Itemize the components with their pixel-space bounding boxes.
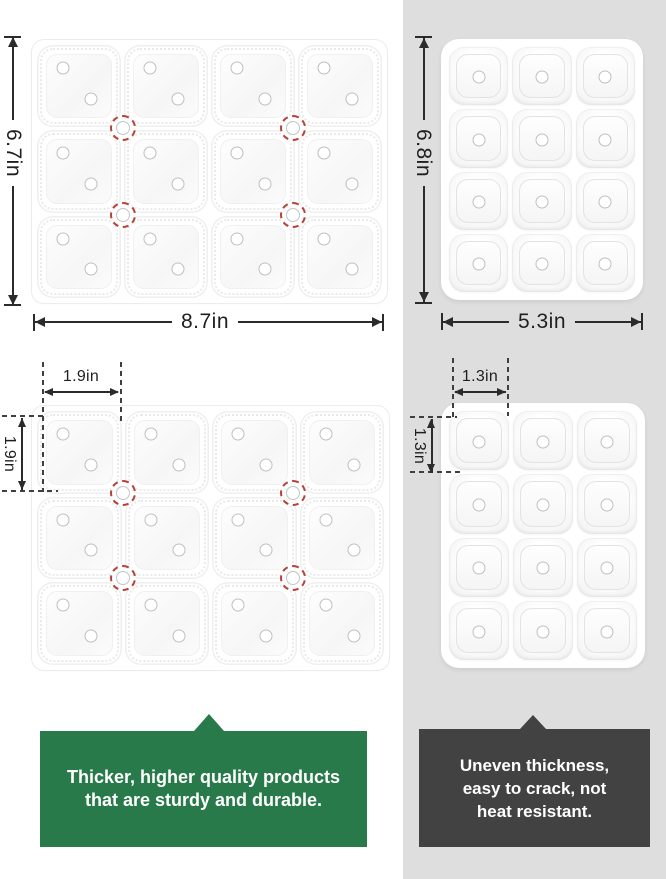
dimension-line [21, 418, 23, 490]
callout-good-line: Thicker, higher quality products [67, 766, 340, 789]
tray-compartment [125, 497, 210, 580]
tray-compartment [512, 234, 571, 292]
vent-hole [472, 258, 485, 271]
tray-compartment [512, 172, 571, 230]
callout-bad-line: Uneven thickness, [460, 754, 609, 777]
tray-compartment [577, 474, 637, 533]
dimension-cap [641, 313, 643, 330]
junction-hole-marker [280, 202, 306, 228]
tray-compartment [211, 130, 295, 212]
junction-hole-marker [280, 565, 306, 591]
tray-compartment [37, 130, 121, 212]
callout-bad: Uneven thickness, easy to crack, not hea… [419, 729, 650, 847]
arrowhead-down-icon [18, 481, 26, 490]
tray-compartment [449, 474, 509, 533]
arrowhead-right-icon [110, 388, 119, 396]
vent-hole [171, 177, 184, 190]
arrowhead-up-icon [8, 37, 18, 47]
vent-hole [260, 630, 273, 643]
vent-hole [85, 544, 98, 557]
vent-hole [57, 599, 70, 612]
height-label-large: 6.7in [1, 120, 25, 186]
vent-hole [258, 92, 271, 105]
dashed-guide [410, 471, 460, 473]
vent-hole [231, 147, 244, 160]
cell-height-label-large: 1.9in [0, 429, 19, 479]
tray-small-cell-detail [441, 403, 645, 668]
vent-hole [347, 544, 360, 557]
vent-hole [84, 92, 97, 105]
vent-hole [599, 71, 612, 84]
tray-compartment [37, 497, 122, 580]
vent-hole [535, 133, 548, 146]
junction-hole-marker [110, 480, 136, 506]
vent-hole [473, 625, 486, 638]
vent-hole [537, 435, 550, 448]
vent-hole [319, 513, 332, 526]
tray-small-overview [441, 39, 643, 300]
vent-hole [144, 428, 157, 441]
pointer-triangle-bad [520, 715, 546, 729]
width-label-small: 5.3in [509, 310, 575, 334]
vent-hole [318, 147, 331, 160]
vent-hole [347, 458, 360, 471]
dimension-cap [415, 302, 432, 304]
vent-hole [473, 562, 486, 575]
vent-hole [84, 177, 97, 190]
tray-compartment [300, 497, 385, 580]
arrowhead-down-icon [419, 292, 429, 302]
vent-hole [144, 599, 157, 612]
junction-hole-marker [280, 115, 306, 141]
junction-hole-marker [110, 565, 136, 591]
tray-compartment [513, 601, 573, 660]
vent-hole [472, 195, 485, 208]
vent-hole [57, 428, 70, 441]
tray-compartment [37, 582, 122, 665]
arrowhead-left-icon [443, 317, 453, 327]
pointer-triangle-good [194, 714, 224, 731]
dashed-guide [2, 415, 44, 417]
tray-compartment [212, 582, 297, 665]
tray-compartment [125, 411, 210, 494]
vent-hole [144, 513, 157, 526]
vent-hole [144, 62, 157, 75]
tray-compartment [298, 216, 382, 298]
tray-compartment [513, 474, 573, 533]
tray-compartment [124, 45, 208, 127]
vent-hole [599, 133, 612, 146]
tray-compartment [125, 582, 210, 665]
vent-hole [345, 177, 358, 190]
tray-compartment [513, 411, 573, 470]
arrowhead-left-icon [44, 388, 53, 396]
tray-grid-large [37, 45, 382, 298]
tray-compartment [449, 172, 508, 230]
vent-hole [84, 263, 97, 276]
vent-hole [473, 435, 486, 448]
vent-hole [319, 599, 332, 612]
arrowhead-left-icon [454, 388, 463, 396]
tray-compartment [298, 130, 382, 212]
vent-hole [345, 92, 358, 105]
tray-compartment [576, 47, 635, 105]
tray-compartment [298, 45, 382, 127]
vent-hole [318, 232, 331, 245]
tray-grid-small-detail [449, 411, 637, 660]
cell-width-label-small: 1.3in [453, 368, 507, 386]
arrowhead-right-icon [497, 388, 506, 396]
vent-hole [318, 62, 331, 75]
tray-compartment [449, 411, 509, 470]
vent-hole [57, 232, 70, 245]
tray-compartment [576, 172, 635, 230]
tray-compartment [449, 234, 508, 292]
junction-hole-marker [110, 202, 136, 228]
vent-hole [319, 428, 332, 441]
tray-large-cell-detail [32, 406, 389, 670]
vent-hole [535, 258, 548, 271]
vent-hole [231, 232, 244, 245]
tray-compartment [577, 601, 637, 660]
tray-compartment [300, 411, 385, 494]
height-label-small: 6.8in [411, 120, 435, 186]
callout-bad-line: heat resistant. [477, 800, 592, 823]
tray-compartment [124, 216, 208, 298]
tray-compartment [576, 234, 635, 292]
dashed-guide [507, 358, 509, 416]
arrowhead-up-icon [18, 418, 26, 427]
arrowhead-up-icon [419, 38, 429, 48]
dashed-guide [410, 416, 457, 418]
vent-hole [172, 458, 185, 471]
vent-hole [85, 630, 98, 643]
vent-hole [345, 263, 358, 276]
dashed-guide [120, 362, 122, 422]
dimension-line [45, 391, 118, 393]
junction-hole-marker [110, 115, 136, 141]
callout-good: Thicker, higher quality products that ar… [40, 731, 367, 847]
vent-hole [172, 544, 185, 557]
dimension-cap [382, 314, 384, 331]
vent-hole [473, 499, 486, 512]
vent-hole [535, 71, 548, 84]
tray-compartment [37, 411, 122, 494]
vent-hole [171, 92, 184, 105]
tray-grid-small [449, 47, 635, 292]
vent-hole [535, 195, 548, 208]
tray-compartment [512, 109, 571, 167]
tray-compartment [449, 601, 509, 660]
dashed-guide [42, 362, 44, 492]
vent-hole [258, 263, 271, 276]
arrowhead-left-icon [35, 317, 45, 327]
vent-hole [537, 625, 550, 638]
tray-compartment [449, 109, 508, 167]
vent-hole [232, 513, 245, 526]
vent-hole [232, 428, 245, 441]
arrowhead-down-icon [8, 295, 18, 305]
callout-bad-line: easy to crack, not [463, 777, 607, 800]
cell-width-label-large: 1.9in [54, 368, 108, 386]
vent-hole [57, 147, 70, 160]
vent-hole [144, 147, 157, 160]
arrowhead-right-icon [372, 317, 382, 327]
tray-large-overview [32, 40, 387, 303]
vent-hole [601, 435, 614, 448]
vent-hole [599, 195, 612, 208]
vent-hole [144, 232, 157, 245]
vent-hole [472, 133, 485, 146]
tray-compartment [124, 130, 208, 212]
vent-hole [232, 599, 245, 612]
cell-height-label-small: 1.3in [409, 421, 429, 471]
vent-hole [599, 258, 612, 271]
vent-hole [472, 71, 485, 84]
junction-hole-marker [280, 480, 306, 506]
vent-hole [85, 458, 98, 471]
vent-hole [57, 62, 70, 75]
vent-hole [171, 263, 184, 276]
tray-compartment [37, 45, 121, 127]
tray-compartment [512, 47, 571, 105]
tray-compartment [211, 45, 295, 127]
width-label-large: 8.7in [172, 310, 238, 334]
vent-hole [601, 562, 614, 575]
tray-compartment [449, 47, 508, 105]
vent-hole [260, 544, 273, 557]
tray-compartment [449, 538, 509, 597]
tray-compartment [300, 582, 385, 665]
tray-compartment [577, 411, 637, 470]
tray-compartment [577, 538, 637, 597]
vent-hole [537, 499, 550, 512]
tray-grid-large-detail [37, 411, 384, 665]
vent-hole [172, 630, 185, 643]
tray-compartment [212, 411, 297, 494]
vent-hole [57, 513, 70, 526]
tray-compartment [576, 109, 635, 167]
tray-compartment [211, 216, 295, 298]
dashed-guide [2, 490, 58, 492]
tray-compartment [513, 538, 573, 597]
tray-compartment [37, 216, 121, 298]
callout-good-line: that are sturdy and durable. [85, 789, 322, 812]
vent-hole [537, 562, 550, 575]
vent-hole [258, 177, 271, 190]
vent-hole [260, 458, 273, 471]
vent-hole [601, 625, 614, 638]
vent-hole [347, 630, 360, 643]
vent-hole [601, 499, 614, 512]
vent-hole [231, 62, 244, 75]
arrowhead-right-icon [631, 317, 641, 327]
